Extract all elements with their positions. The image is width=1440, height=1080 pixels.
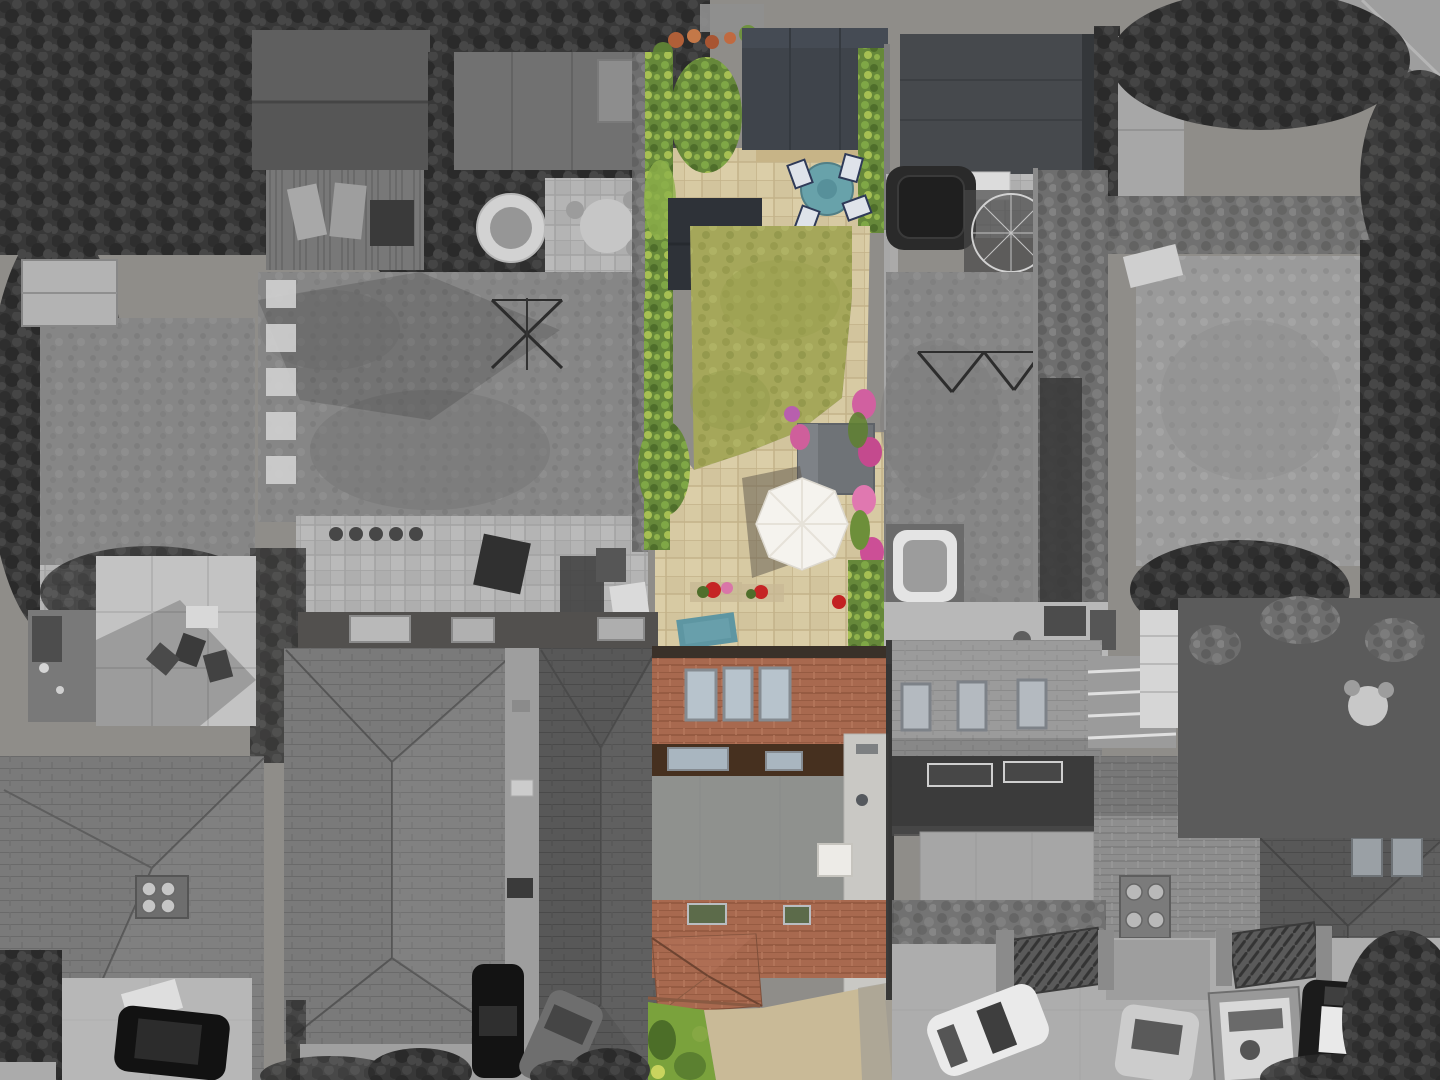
fence-rail (1229, 922, 1322, 987)
roof-window (686, 670, 716, 720)
stepping-stone (266, 456, 296, 484)
garden-clutter (596, 548, 626, 582)
framed-rooflight (1004, 762, 1062, 782)
chimney-pot (1148, 884, 1164, 900)
pink-flowers (790, 424, 810, 450)
front-garden-gray (1106, 940, 1210, 1000)
hot-tub-water (490, 207, 532, 249)
studio-roof-highlight (742, 28, 888, 48)
lawn-patch (1160, 320, 1340, 480)
garden-table (580, 199, 634, 253)
pot-foliage (697, 586, 709, 598)
rear-skylight (598, 618, 644, 640)
deck-table (370, 200, 414, 246)
rear-skylight (452, 618, 494, 642)
front-shrub (692, 1026, 708, 1042)
flat-roof-extension (652, 776, 854, 906)
white-rooflight (818, 844, 852, 876)
chair (566, 201, 584, 219)
chimney-pot (142, 899, 156, 913)
framed-rooflight (928, 764, 992, 786)
dark-flat-roof (892, 756, 1102, 834)
chair (1378, 682, 1394, 698)
wall-pier (1216, 928, 1232, 986)
patio-plant (1365, 618, 1425, 662)
roof-window (958, 682, 986, 730)
truck-cargo (1228, 1008, 1283, 1032)
aerial-photo (0, 0, 1440, 1080)
roof-vent (512, 700, 530, 712)
stepping-stone (266, 280, 296, 308)
soil-bed (1040, 378, 1082, 613)
left-bed (644, 300, 670, 550)
vent (39, 663, 49, 673)
colour-house (648, 646, 892, 1080)
roof-vent (856, 744, 878, 754)
pot-foliage (746, 589, 756, 599)
aerial-photo-svg (0, 0, 1440, 1080)
roof-window (1018, 680, 1046, 728)
rear-skylight (350, 616, 410, 642)
sun-lounger (329, 182, 366, 239)
chimney-stack (1120, 876, 1170, 938)
garage-roof-1-face (252, 30, 430, 102)
roof-hatch (507, 878, 533, 898)
roof-shade (1082, 34, 1094, 174)
roof-window (766, 752, 802, 770)
corner-hedge (0, 950, 62, 1080)
chair (1344, 680, 1360, 696)
wall-pier (1316, 926, 1332, 982)
front-shrub (674, 1052, 706, 1080)
patio-plant (1260, 596, 1340, 644)
roof-window (1392, 838, 1422, 876)
terracotta-pot (687, 29, 701, 43)
terracotta-pot (724, 32, 736, 44)
white-wall (1140, 610, 1178, 728)
roof-vent (856, 794, 868, 806)
red-flowers (832, 595, 846, 609)
lawn-patch (690, 370, 770, 430)
outbuilding-roof (900, 34, 1094, 174)
red-flowers (754, 585, 768, 599)
border-shrub (848, 412, 868, 448)
truck-cargo (1240, 1040, 1260, 1060)
chimney-pot (161, 882, 175, 896)
window (688, 904, 726, 924)
rooflight-dark (32, 616, 62, 662)
plant-pot (329, 527, 343, 541)
suv-glass (134, 1018, 202, 1064)
lawn-patch (880, 340, 1000, 500)
suv-glass (479, 1006, 517, 1036)
wall-pier (996, 930, 1014, 992)
roof-window (902, 684, 930, 730)
roof-vent (511, 780, 533, 796)
stepping-stone (266, 324, 296, 352)
chimney-pot (1126, 884, 1142, 900)
trampoline-mat (898, 176, 964, 238)
border-shrub (850, 510, 870, 550)
wall-pier (1098, 930, 1114, 990)
plant-pot (409, 527, 423, 541)
chimney-pot (161, 899, 175, 913)
plant-pot (389, 527, 403, 541)
left-lawn (40, 318, 255, 573)
chimney-pot (1148, 912, 1164, 928)
chimney-pot (1126, 912, 1142, 928)
hot-tub-water (903, 540, 947, 592)
roof-window (1352, 838, 1382, 876)
garage-skylight (598, 60, 634, 122)
window (784, 906, 810, 924)
right-edge-trees (1360, 240, 1440, 600)
pavement (0, 1062, 56, 1080)
table-centre (817, 179, 837, 199)
front-shrub (648, 1020, 676, 1060)
roof-window (724, 668, 752, 720)
patio-plant (1189, 625, 1241, 665)
stepping-stone (266, 412, 296, 440)
plant-pot (369, 527, 383, 541)
chimney-pot (142, 882, 156, 896)
patio-table (186, 606, 218, 628)
roof-window (760, 668, 790, 720)
pink-flowers (852, 485, 876, 515)
roof-window (668, 748, 728, 770)
pink-pot-flowers (721, 582, 733, 594)
vent (56, 686, 64, 694)
terracotta-pot (705, 35, 719, 49)
lawn-patch (720, 260, 840, 340)
clutter (1044, 606, 1086, 636)
bright-shrub (651, 1065, 665, 1079)
hedge-divider (428, 52, 454, 274)
purple-flowers (784, 406, 800, 422)
plant-pot (349, 527, 363, 541)
tree (670, 57, 742, 173)
stepping-stone (266, 368, 296, 396)
